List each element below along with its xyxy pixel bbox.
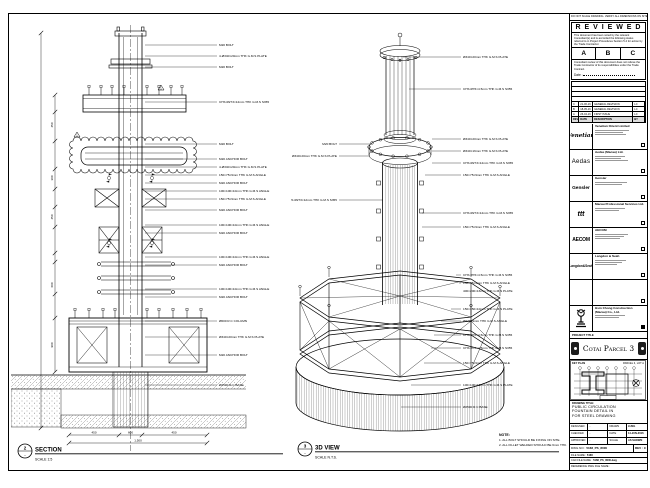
status-b: B <box>596 48 620 60</box>
annotation-label: Ø2500 R.C BASE <box>463 405 488 409</box>
decorative-ring <box>81 147 187 165</box>
annotation-label: 100×100×10mm THK G.M.S PLATE <box>463 383 513 387</box>
bolted-flange <box>368 136 433 164</box>
company-row-mps: ttt Macau Professional Services Ltd. <box>570 202 647 228</box>
contractor-row: Hsin Chong Construction (Macau) Co., Ltd… <box>570 306 647 332</box>
svg-text:900: 900 <box>50 342 54 347</box>
signoff-row-approved: APPROVED-SCALEAS SHOWN <box>570 438 647 445</box>
company-checkbox <box>641 273 645 277</box>
annotation-label: CHS Ø273×12mm THK G.M.S S355 <box>463 161 513 165</box>
revision-header: REVDATEDESCRIPTIONBY <box>572 117 645 122</box>
company-checkbox <box>641 195 645 199</box>
aecom-logo: AECOM <box>570 228 593 253</box>
svg-text:450: 450 <box>50 122 54 127</box>
company-row-venetian: Venetian Venetian Orient Limited <box>570 124 647 150</box>
annotation-label: 100×100×10mm THK G.M.S ANGLE <box>219 223 269 227</box>
annotation-label: M20 ANCHOR BOLT <box>219 181 248 185</box>
annotation-label: M20 BOLT <box>322 142 337 146</box>
section-view-label: 2 - SECTION SCALE 1:5 <box>18 444 283 462</box>
annotation-label: CHS Ø76×4.5mm THK G.M.S S355 <box>463 87 512 91</box>
svg-text:450: 450 <box>50 214 54 219</box>
annotation-label: CHS Ø273×12mm THK G.M.S S355 <box>291 198 337 202</box>
contractor-checkbox <box>641 325 645 329</box>
banner-ornament-left <box>571 342 579 355</box>
company-row-langdon-seah: Langdon&Seah Langdon & Seah <box>570 254 647 280</box>
annotation-label: Ø340×20mm THK G.M.S PLATE <box>463 55 508 59</box>
dwg-number-row: DWG NO :5168_PS_8000REV : C <box>570 445 647 453</box>
fountain-mark <box>633 379 640 386</box>
svg-text:SCALE 1:5: SCALE 1:5 <box>35 458 52 462</box>
project-title-label: PROJECT TITLE <box>570 332 647 339</box>
review-stamp: R E V I E W E D This document has been n… <box>571 22 646 80</box>
base-bolts <box>74 308 202 318</box>
stamp-paragraph-2: Consultant review of this document does … <box>572 60 645 71</box>
annotation-label: Ø340×20mm THK G.M.S PLATE <box>219 335 264 339</box>
banner-ornament-right <box>638 342 646 355</box>
company-row-empty <box>570 280 647 306</box>
status-c: C <box>621 48 645 60</box>
revision-cloud <box>70 137 197 173</box>
svg-text:2: 2 <box>24 446 27 451</box>
svg-text:600: 600 <box>128 431 133 435</box>
contractor-logo <box>570 306 593 331</box>
annotation-label: 150×75×9mm THK G.M.S ANGLE <box>219 173 266 177</box>
reviewed-title: R E V I E W E D <box>572 23 645 33</box>
signoff-row-designed: DESIGNED-DRAWNLUNG <box>570 424 647 431</box>
gensler-logo: Gensler <box>570 176 593 201</box>
pipe-bundle <box>386 56 414 135</box>
annotation-label: M20 ANCHOR BOLT <box>219 157 248 161</box>
annotation-label: CHS Ø76×4.5mm THK G.M.S S355 <box>463 333 512 337</box>
svg-text:300: 300 <box>50 175 54 180</box>
annotation-label: 150×75×9mm THK G.M.S ANGLE <box>463 361 510 365</box>
company-checkbox <box>641 247 645 251</box>
svg-text:1. ALL BOLT SHOULD BE FIXING O: 1. ALL BOLT SHOULD BE FIXING ON SITE. <box>499 438 560 442</box>
drawing-title: DRAWING TITLE: PUBLIC CIRCULATION FOUNTA… <box>570 401 647 424</box>
annotation-label: CHS Ø76×4.5mm THK G.M.S S355 <box>463 273 512 277</box>
date-row: Date : <box>572 72 645 79</box>
ground <box>11 372 246 428</box>
annotation-label: 4-Ø340×20mm THK G.M.S PLATE <box>219 165 267 169</box>
annotation-label: M20 BOLT <box>219 65 234 69</box>
revision-table: C21-06-16GENERAL REVISIONLCB18-05-16GENE… <box>571 81 646 123</box>
svg-text:SCALE N.T.S.: SCALE N.T.S. <box>315 456 337 460</box>
annotation-label: 400×200×16mm THK G.M.S PLATE <box>463 289 513 293</box>
section-view: 1 1 <box>11 15 291 467</box>
svg-text:NOTE:: NOTE: <box>499 433 510 437</box>
svg-text:PARCEL 3, LOT A: PARCEL 3, LOT A <box>623 361 644 365</box>
annotation-label: 4-Ø340×20mm THK G.M.S PLATE <box>219 54 267 58</box>
key-plan: KEY PLAN PARCEL 3, LOT A <box>570 360 647 401</box>
langdon-seah-logo: Langdon&Seah <box>570 254 593 279</box>
finial <box>398 33 402 46</box>
annotation-label: 150×75×9mm THK G.M.S ANGLE <box>463 281 510 285</box>
signoff-row-checked: CHECKED-DATE14-JUN-2016 <box>570 431 647 438</box>
annotation-label: M20 ANCHOR BOLT <box>219 295 248 299</box>
annotation-label: M20 ANCHOR BOLT <box>219 353 248 357</box>
status-columns: A B C <box>572 47 645 60</box>
collar <box>384 131 416 144</box>
sheet-notice: DO NOT SCALE DRAWING. VERIFY ALL DIMENSI… <box>570 14 647 21</box>
company-checkbox <box>641 143 645 147</box>
annotation-label: M20 BOLT <box>219 142 234 146</box>
svg-text:3D VIEW: 3D VIEW <box>315 446 340 452</box>
venetian-logo: Venetian <box>570 124 593 149</box>
annotation-label: M20 ANCHOR BOLT <box>219 231 248 235</box>
annotation-label: 100×100×10mm THK G.M.S ANGLE <box>219 287 269 291</box>
svg-text:2. ALL FILLET WELDED SHOULD BE: 2. ALL FILLET WELDED SHOULD BE 6mm THK. <box>499 443 567 447</box>
annotation-label: Ø340×20mm THK G.M.S PLATE <box>292 154 337 158</box>
aedas-logo: Aedas <box>570 150 593 175</box>
svg-text:-: - <box>24 453 26 458</box>
annotation-label: 150×75×9mm THK G.M.S ANGLE <box>463 225 510 229</box>
annotation-label: M20 ANCHOR BOLT <box>219 208 248 212</box>
annotation-label: CHS Ø273×12mm THK G.M.S S355 <box>219 100 269 104</box>
svg-text:SECTION: SECTION <box>35 448 62 454</box>
ring-plate-bolts <box>88 85 183 95</box>
annotation-label: Ø273×9mm THK G.M.S ANGLE <box>463 319 507 323</box>
company-row-aedas: Aedas Aedas (Macau) Ltd. <box>570 150 647 176</box>
building-outline <box>582 372 604 394</box>
stamp-paragraph-1: This document has been noted by the rele… <box>572 33 645 47</box>
annotation-label: CHS Ø76×4.5mm THK G.M.S S355 <box>463 346 512 350</box>
date-line <box>583 73 635 76</box>
annotation-label: 100×100×10mm THK G.M.S ANGLE <box>219 255 269 259</box>
iso-view: NOTE: 1. ALL BOLT SHOULD BE FIXING ON SI… <box>291 15 576 467</box>
title-block: DO NOT SCALE DRAWING. VERIFY ALL DIMENSI… <box>569 14 647 470</box>
annotation-label: 150×75×9mm THK G.M.S ANGLE <box>219 197 266 201</box>
annotation-label: Ø600 R.C COLUMN <box>219 319 247 323</box>
svg-text:-: - <box>304 451 306 456</box>
annotation-label: M20 BOLT <box>219 43 234 47</box>
svg-text:3: 3 <box>304 444 307 449</box>
base-assembly <box>69 318 207 372</box>
annotation-label: CHS Ø273×12mm THK G.M.S S355 <box>463 211 513 215</box>
drawing-sheet: 1 1 <box>8 13 648 471</box>
svg-text:600: 600 <box>50 282 54 287</box>
address-placeholder <box>595 130 629 131</box>
grid-bubbles <box>574 366 642 395</box>
company-checkbox <box>641 299 645 303</box>
svg-text:1,500: 1,500 <box>134 439 142 443</box>
annotation-label: 150×75×9mm THK G.M.S ANGLE <box>463 173 510 177</box>
project-banner: Cotai Parcel 3 <box>570 339 647 360</box>
annotation-label: Ø340×16mm THK G.M.S PLATE <box>463 149 508 153</box>
svg-text:KEY PLAN: KEY PLAN <box>572 361 585 365</box>
note-block: NOTE: 1. ALL BOLT SHOULD BE FIXING ON SI… <box>499 433 567 447</box>
mps-logo: ttt <box>570 202 593 227</box>
annotation-label: M20 ANCHOR BOLT <box>219 263 248 267</box>
svg-text:450: 450 <box>171 431 176 435</box>
company-row-gensler: Gensler Gensler <box>570 176 647 202</box>
reference-dwg-row: REFERENCE DWG FILE NAME : <box>570 464 647 470</box>
annotation-label: 100×100×10mm THK G.M.S ANGLE <box>219 189 269 193</box>
annotation-label: Ø340×20mm THK G.M.S PLATE <box>463 137 508 141</box>
project-title: Cotai Parcel 3 <box>579 344 638 353</box>
company-row-aecom: AECOM AECOM <box>570 228 647 254</box>
svg-text:450: 450 <box>91 431 96 435</box>
arm-plates <box>98 262 175 294</box>
annotation-label: Ø2500 R.C BASE <box>219 383 244 387</box>
empty-logo-cell <box>570 280 593 305</box>
company-checkbox <box>641 221 645 225</box>
status-a: A <box>572 48 596 60</box>
annotation-label: 150×150×10mm THK G.M.S PLATE <box>463 307 513 311</box>
ring-plate <box>83 95 186 112</box>
company-checkbox <box>641 169 645 173</box>
